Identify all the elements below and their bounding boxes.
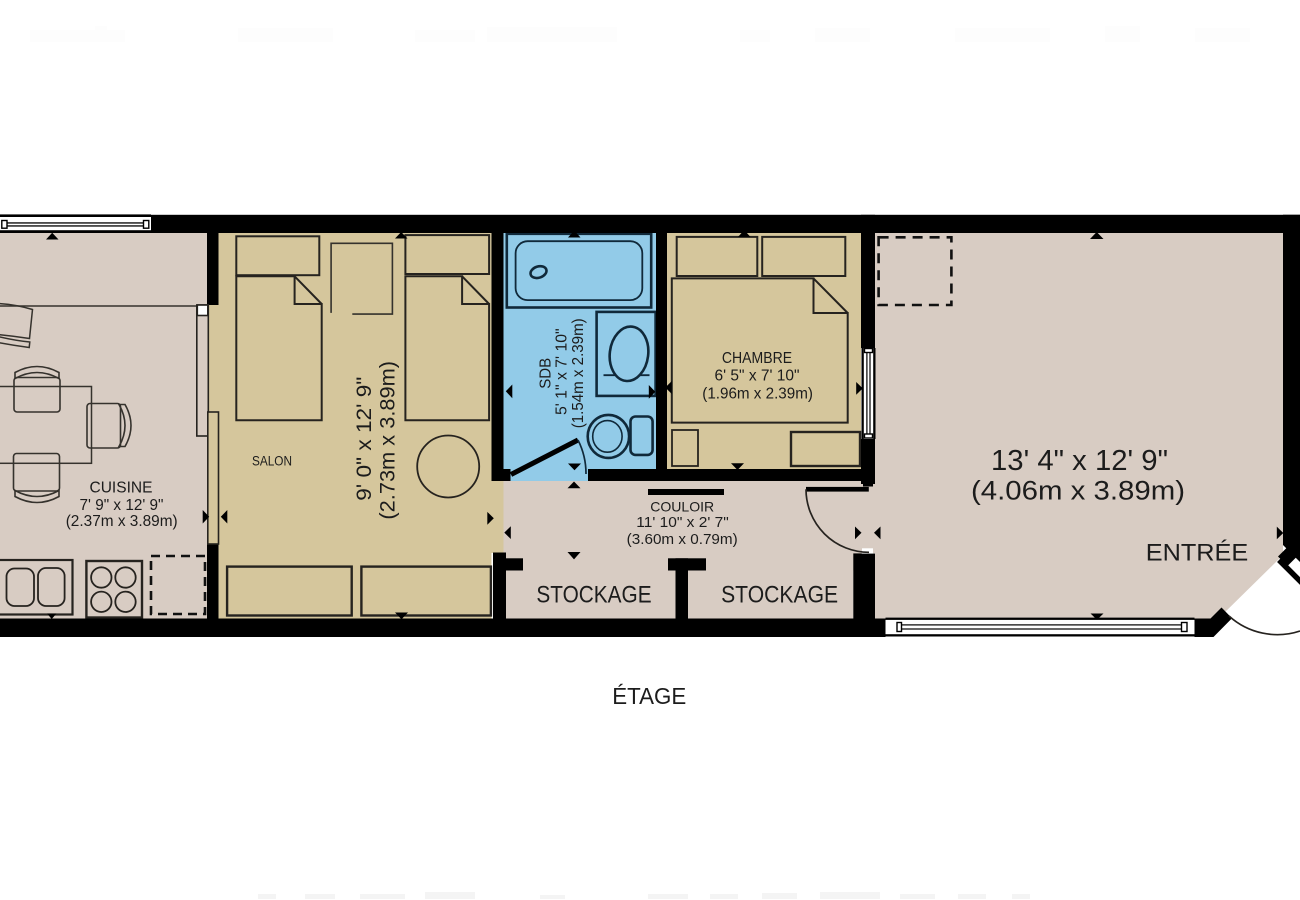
svg-text:ENTRÉE: ENTRÉE xyxy=(1146,540,1249,567)
svg-text:7' 9" x 12' 9": 7' 9" x 12' 9" xyxy=(80,497,164,514)
svg-text:11' 10" x 2' 7": 11' 10" x 2' 7" xyxy=(636,515,729,531)
svg-text:SALON: SALON xyxy=(252,453,292,468)
svg-text:(1.96m x 2.39m): (1.96m x 2.39m) xyxy=(702,385,813,402)
svg-text:ÉTAGE: ÉTAGE xyxy=(612,683,686,709)
svg-text:COULOIR: COULOIR xyxy=(650,499,714,515)
svg-text:CUISINE: CUISINE xyxy=(90,479,153,496)
svg-text:9' 0" x 12' 9": 9' 0" x 12' 9" xyxy=(352,377,376,501)
svg-text:(4.06m x 3.89m): (4.06m x 3.89m) xyxy=(971,475,1185,505)
svg-text:(2.73m x 3.89m): (2.73m x 3.89m) xyxy=(375,361,399,520)
svg-text:6' 5" x 7' 10": 6' 5" x 7' 10" xyxy=(715,368,800,385)
svg-text:(1.54m x 2.39m): (1.54m x 2.39m) xyxy=(570,318,587,428)
svg-text:SDB: SDB xyxy=(538,358,555,389)
svg-text:13' 4" x 12' 9": 13' 4" x 12' 9" xyxy=(991,445,1168,477)
svg-text:(2.37m x 3.89m): (2.37m x 3.89m) xyxy=(66,513,178,530)
svg-text:STOCKAGE: STOCKAGE xyxy=(536,582,651,609)
svg-text:(3.60m x 0.79m): (3.60m x 0.79m) xyxy=(627,532,738,548)
svg-text:STOCKAGE: STOCKAGE xyxy=(721,582,838,609)
svg-text:CHAMBRE: CHAMBRE xyxy=(722,350,792,367)
svg-text:5' 1" x 7' 10": 5' 1" x 7' 10" xyxy=(554,328,571,415)
